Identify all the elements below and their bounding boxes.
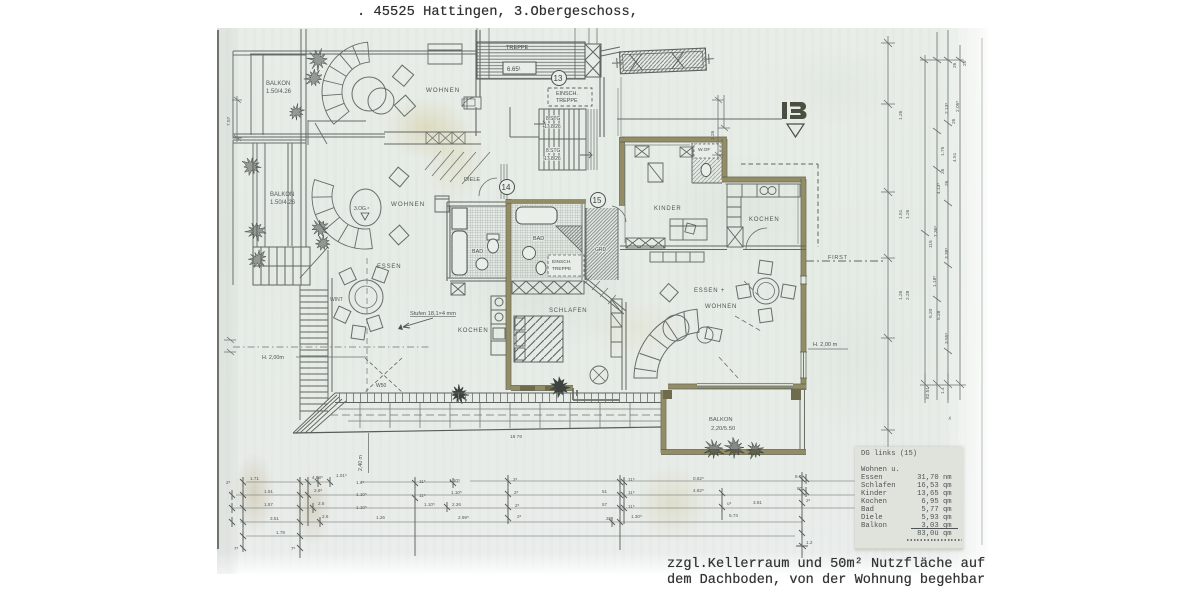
svg-text:3.55⁵: 3.55⁵ (944, 333, 950, 344)
svg-text:1.51: 1.51 (264, 489, 273, 494)
svg-text:3.OG.⁶: 3.OG.⁶ (354, 206, 369, 212)
svg-text:2.99⁵: 2.99⁵ (458, 515, 469, 520)
svg-text:TREPPE: TREPPE (552, 266, 571, 272)
svg-text:WOHNEN: WOHNEN (391, 201, 425, 208)
svg-text:5.20: 5.20 (928, 308, 934, 318)
svg-text:H. 2,00 m: H. 2,00 m (813, 342, 838, 348)
svg-text:DIELE: DIELE (464, 177, 480, 183)
svg-text:3.51: 3.51 (270, 516, 279, 521)
svg-text:1.10⁵: 1.10⁵ (451, 490, 462, 495)
svg-text:1.30⁵: 1.30⁵ (631, 514, 642, 519)
svg-text:17.8/26: 17.8/26 (544, 124, 561, 130)
svg-text:8.7: 8.7 (795, 474, 802, 479)
svg-text:1.10⁵: 1.10⁵ (356, 505, 367, 510)
svg-text:GRD.: GRD. (595, 247, 608, 253)
svg-text:11⁵: 11⁵ (628, 504, 635, 509)
svg-text:ESSEN: ESSEN (377, 264, 401, 270)
svg-text:1.57: 1.57 (264, 502, 273, 507)
svg-text:26: 26 (952, 62, 958, 68)
svg-text:2⁶: 2⁶ (515, 503, 520, 508)
svg-text:BAD: BAD (533, 236, 544, 242)
svg-text:2⁶: 2⁶ (517, 514, 522, 519)
svg-text:7⁵: 7⁵ (291, 546, 296, 551)
svg-text:1.2: 1.2 (806, 540, 813, 545)
svg-text:1.26: 1.26 (898, 110, 904, 120)
svg-text:3.81: 3.81 (753, 500, 762, 505)
svg-text:13: 13 (554, 74, 563, 83)
svg-text:BALKON: BALKON (270, 192, 294, 198)
svg-text:1.51: 1.51 (898, 209, 904, 219)
svg-text:4.51: 4.51 (952, 152, 958, 162)
svg-text:1.78: 1.78 (276, 530, 285, 535)
svg-text:26: 26 (940, 168, 946, 174)
svg-text:1.4⁵: 1.4⁵ (356, 480, 364, 485)
svg-text:7.57: 7.57 (226, 116, 232, 126)
svg-text:4.13⁵: 4.13⁵ (936, 183, 942, 194)
svg-text:26¹: 26¹ (606, 516, 613, 521)
svg-text:51: 51 (602, 489, 608, 494)
svg-text:26: 26 (951, 118, 957, 124)
svg-text:2.28: 2.28 (905, 290, 911, 300)
svg-text:8.STG: 8.STG (546, 148, 561, 154)
svg-text:BALKON: BALKON (266, 81, 290, 87)
svg-text:5.73: 5.73 (729, 513, 738, 518)
svg-text:BALKON: BALKON (709, 417, 733, 423)
svg-text:4.82⁵: 4.82⁵ (693, 488, 704, 493)
svg-text:1.26: 1.26 (710, 130, 716, 140)
svg-text:11⁵: 11⁵ (628, 477, 635, 482)
svg-text:2⁶: 2⁶ (806, 498, 811, 503)
svg-text:2.05⁵: 2.05⁵ (955, 101, 961, 112)
svg-text:1.75: 1.75 (940, 146, 946, 156)
svg-text:11⁵: 11⁵ (419, 479, 426, 484)
svg-text:2,20/5.50: 2,20/5.50 (711, 426, 735, 432)
svg-text:2⁵: 2⁵ (226, 480, 231, 485)
svg-text:3.38⁵: 3.38⁵ (944, 248, 950, 259)
svg-text:2.6: 2.6 (318, 501, 325, 506)
svg-text:TREPPE: TREPPE (556, 98, 578, 104)
svg-text:WINT: WINT (330, 297, 343, 303)
svg-text:TREPPE: TREPPE (506, 45, 529, 51)
svg-text:W.OF: W.OF (698, 147, 710, 153)
svg-text:1.26: 1.26 (905, 209, 911, 219)
svg-text:26: 26 (944, 180, 950, 186)
svg-text:³⁵: ³⁵ (948, 416, 954, 420)
svg-text:Stufen 18,1×4 mm: Stufen 18,1×4 mm (410, 311, 456, 317)
svg-text:WOHNEN: WOHNEN (426, 87, 460, 94)
svg-text:1.4: 1.4 (940, 387, 946, 394)
svg-text:2⁶: 2⁶ (513, 477, 518, 482)
svg-text:2.13⁵: 2.13⁵ (944, 103, 950, 114)
svg-text:1.10⁵: 1.10⁵ (424, 502, 435, 507)
svg-text:EINSCH.: EINSCH. (556, 91, 578, 97)
svg-text:80: 80 (797, 486, 803, 491)
svg-text:KOCHEN: KOCHEN (749, 217, 779, 223)
svg-text:FIRST: FIRST (828, 255, 848, 261)
svg-text:11⁵: 11⁵ (628, 490, 635, 495)
svg-text:7.36⁵: 7.36⁵ (933, 226, 939, 237)
svg-text:EINSCH.: EINSCH. (552, 259, 571, 265)
svg-text:11⁵: 11⁵ (419, 493, 426, 498)
svg-text:2.6⁵: 2.6⁵ (314, 488, 322, 493)
svg-text:ESSEN +: ESSEN + (694, 288, 725, 294)
svg-text:WOHNEN: WOHNEN (705, 304, 737, 310)
svg-text:7⁵: 7⁵ (234, 546, 239, 551)
svg-text:2,40 m: 2,40 m (358, 455, 364, 471)
svg-text:25: 25 (962, 60, 968, 66)
svg-text:4.88⁵: 4.88⁵ (312, 475, 323, 480)
svg-text:1.26: 1.26 (376, 515, 385, 520)
svg-text:8.STG: 8.STG (546, 116, 561, 122)
svg-text:115: 115 (928, 240, 934, 248)
svg-text:14: 14 (502, 183, 511, 192)
svg-text:u⁵: u⁵ (727, 501, 732, 506)
svg-text:W50: W50 (376, 383, 387, 389)
svg-text:5.28: 5.28 (936, 310, 942, 320)
svg-text:1.50/4.26: 1.50/4.26 (270, 200, 296, 206)
svg-text:18 76: 18 76 (510, 434, 522, 440)
svg-text:15: 15 (593, 196, 602, 205)
svg-text:1.01⁵: 1.01⁵ (336, 473, 347, 478)
svg-text:1.71: 1.71 (250, 476, 259, 481)
svg-text:2.6: 2.6 (322, 514, 329, 519)
svg-text:1.18⁵: 1.18⁵ (932, 276, 938, 287)
svg-text:BAD: BAD (472, 249, 483, 255)
svg-text:82.51: 82.51 (925, 387, 931, 399)
svg-text:1.26: 1.26 (898, 290, 904, 300)
svg-text:H. 2,00m: H. 2,00m (262, 355, 284, 361)
svg-text:2.26: 2.26 (452, 502, 461, 507)
svg-text:57: 57 (602, 502, 608, 507)
svg-text:2⁶: 2⁶ (514, 490, 519, 495)
svg-text:1.50/4.26: 1.50/4.26 (266, 89, 292, 95)
svg-text:6.65¹: 6.65¹ (507, 67, 521, 73)
svg-text:0.62⁵: 0.62⁵ (693, 476, 704, 481)
svg-text:KINDER: KINDER (654, 206, 681, 212)
svg-text:SCHLAFEN: SCHLAFEN (549, 308, 587, 314)
svg-text:1.10⁵: 1.10⁵ (356, 492, 367, 497)
svg-text:17.8/26: 17.8/26 (544, 156, 561, 162)
svg-text:KOCHEN: KOCHEN (458, 328, 488, 334)
svg-text:1.10⁵: 1.10⁵ (449, 478, 460, 483)
